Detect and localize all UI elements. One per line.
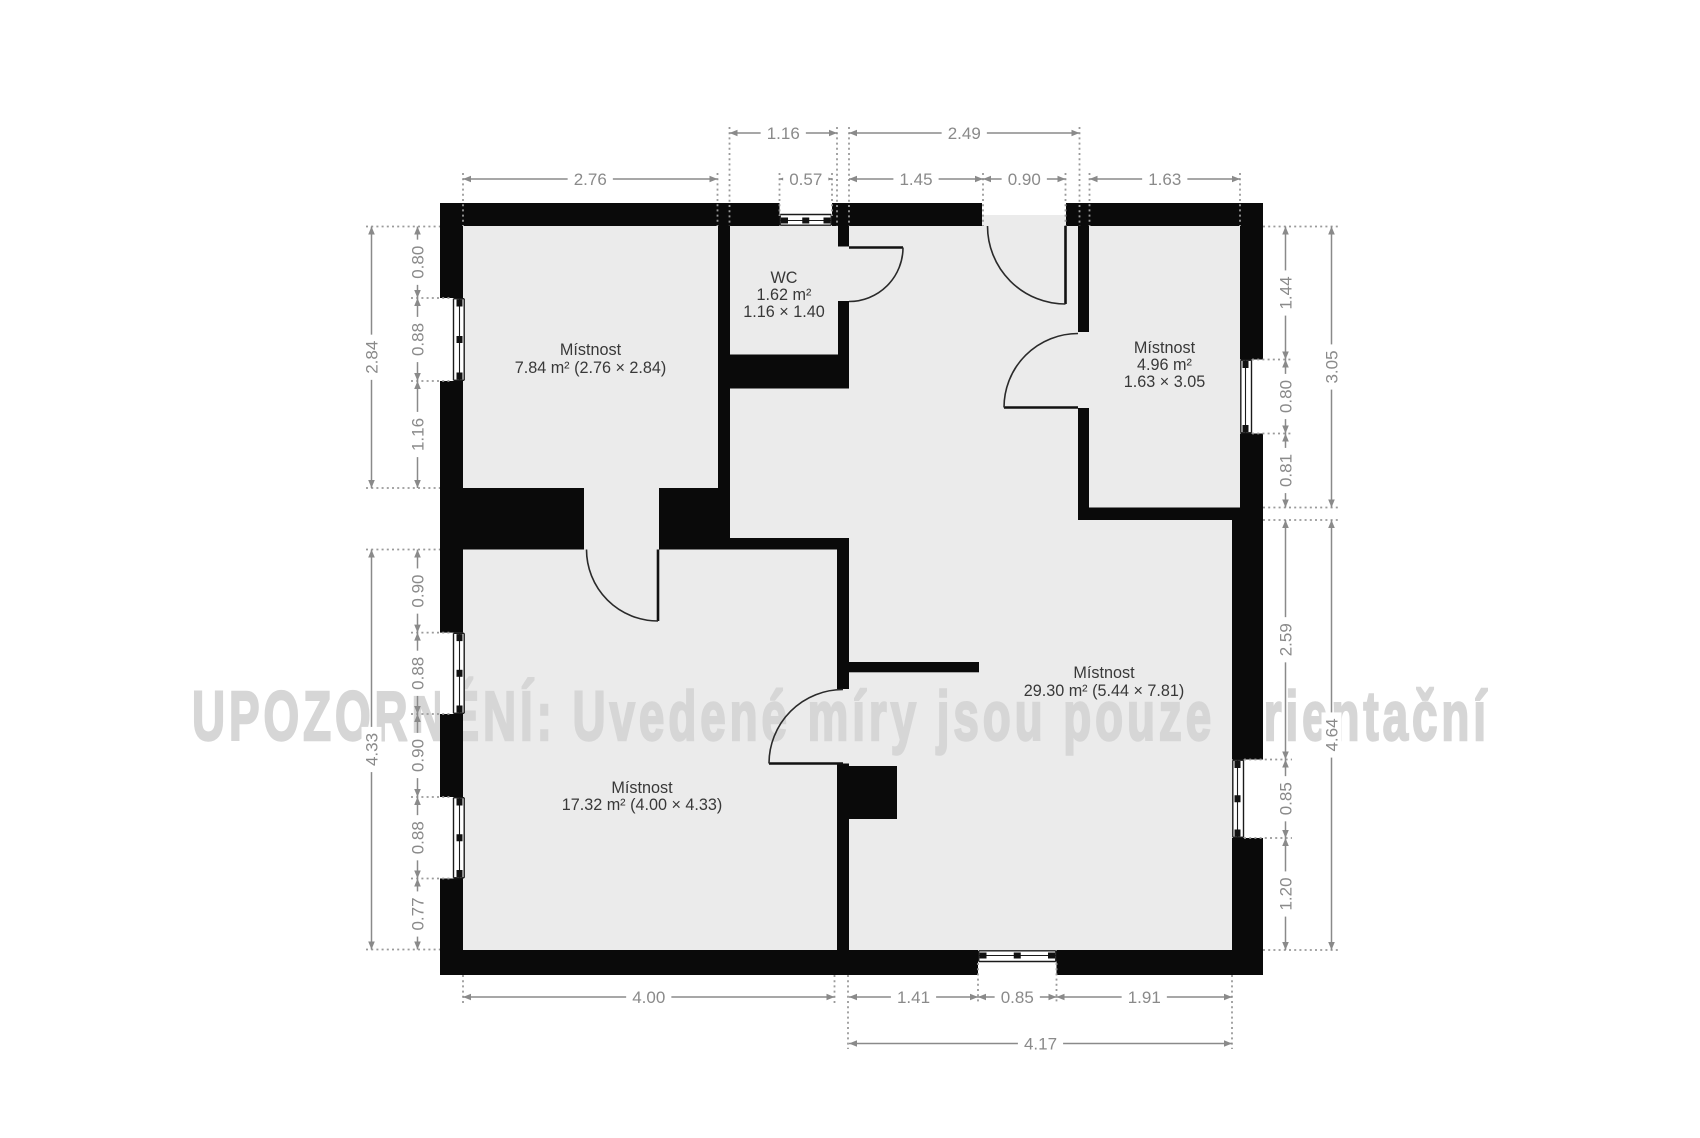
svg-text:1.45: 1.45 [899, 170, 932, 189]
svg-text:1.20: 1.20 [1277, 877, 1296, 910]
svg-text:1.41: 1.41 [897, 988, 930, 1007]
svg-text:29.30 m² (5.44 × 7.81): 29.30 m² (5.44 × 7.81) [1024, 682, 1185, 700]
svg-text:1.16 × 1.40: 1.16 × 1.40 [743, 303, 824, 321]
svg-text:1.62 m²: 1.62 m² [757, 286, 812, 304]
svg-text:0.90: 0.90 [409, 739, 428, 772]
svg-text:0.88: 0.88 [409, 323, 428, 356]
svg-text:2.49: 2.49 [948, 124, 981, 143]
svg-text:0.85: 0.85 [1001, 988, 1034, 1007]
svg-text:1.16: 1.16 [767, 124, 800, 143]
svg-text:4.64: 4.64 [1323, 718, 1342, 751]
svg-text:2.76: 2.76 [574, 170, 607, 189]
svg-text:0.77: 0.77 [409, 897, 428, 930]
svg-text:3.05: 3.05 [1323, 350, 1342, 383]
svg-text:1.44: 1.44 [1277, 276, 1296, 309]
svg-text:2.59: 2.59 [1277, 623, 1296, 656]
svg-text:Místnost: Místnost [1073, 664, 1135, 682]
svg-text:4.96 m²: 4.96 m² [1137, 356, 1192, 374]
svg-text:4.00: 4.00 [632, 988, 665, 1007]
svg-text:0.90: 0.90 [409, 575, 428, 608]
svg-text:0.88: 0.88 [409, 657, 428, 690]
svg-text:4.33: 4.33 [363, 733, 382, 766]
svg-text:1.63 × 3.05: 1.63 × 3.05 [1124, 373, 1205, 391]
svg-text:0.80: 0.80 [409, 246, 428, 279]
svg-text:7.84 m² (2.76 × 2.84): 7.84 m² (2.76 × 2.84) [515, 359, 667, 377]
svg-text:WC: WC [771, 269, 798, 287]
svg-text:2.84: 2.84 [363, 341, 382, 374]
svg-text:0.85: 0.85 [1277, 782, 1296, 815]
svg-text:Místnost: Místnost [1134, 339, 1196, 357]
svg-text:0.57: 0.57 [789, 170, 822, 189]
svg-text:0.90: 0.90 [1008, 170, 1041, 189]
svg-text:1.91: 1.91 [1128, 988, 1161, 1007]
svg-text:Místnost: Místnost [560, 341, 622, 359]
svg-text:1.63: 1.63 [1148, 170, 1181, 189]
svg-text:4.17: 4.17 [1024, 1035, 1057, 1054]
svg-text:17.32 m² (4.00 × 4.33): 17.32 m² (4.00 × 4.33) [562, 796, 723, 814]
svg-text:0.88: 0.88 [409, 821, 428, 854]
svg-text:Místnost: Místnost [611, 779, 673, 797]
svg-text:0.81: 0.81 [1277, 454, 1296, 487]
svg-text:1.16: 1.16 [409, 418, 428, 451]
svg-text:0.80: 0.80 [1277, 380, 1296, 413]
